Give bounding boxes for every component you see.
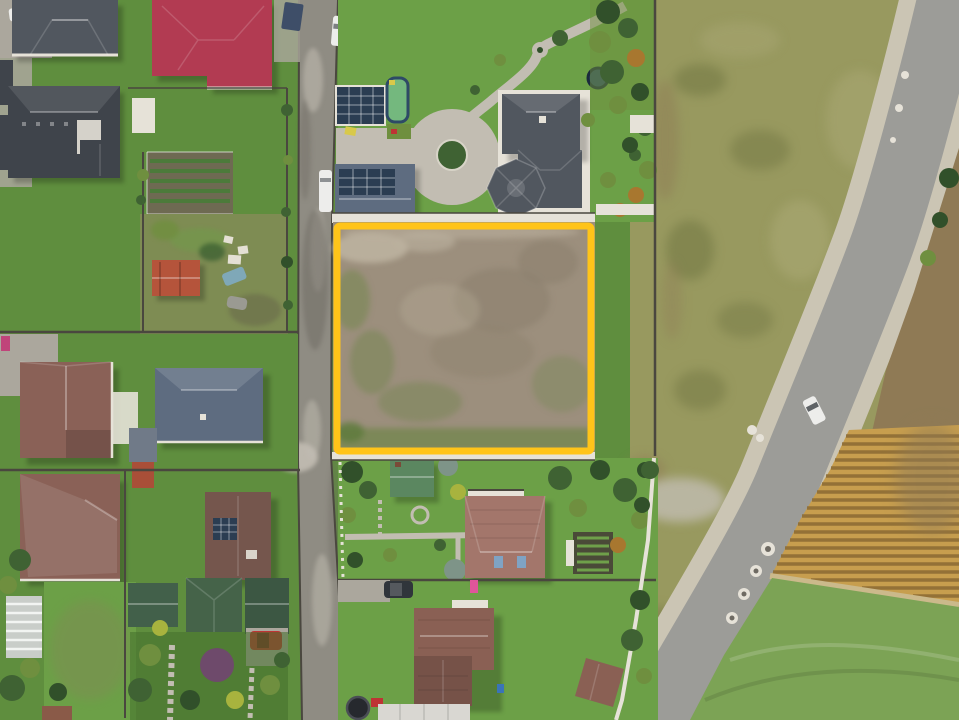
garden-cabin (390, 459, 439, 503)
hot-tub (347, 697, 369, 719)
block-west (0, 334, 300, 488)
rusty-shed (152, 260, 205, 301)
skylight-2 (517, 556, 526, 568)
pink-slide (470, 580, 478, 593)
block-south-center (338, 456, 659, 720)
greenhouse (6, 596, 42, 658)
chimney (539, 116, 546, 123)
pink-car (1, 336, 10, 351)
house-slate (155, 368, 270, 449)
green-sheds (128, 578, 289, 634)
pool-slide (389, 80, 395, 85)
house-south-a (465, 490, 552, 584)
swimming-pool (387, 78, 408, 122)
veg-garden-s (566, 532, 613, 574)
bottom-shed (42, 706, 72, 720)
estate-south-wall (596, 204, 655, 215)
house-red-roof (152, 0, 278, 94)
house-nw-upper (12, 0, 123, 62)
solar-garage (335, 85, 386, 126)
house-brown-sw (20, 474, 126, 586)
aerial-photo-canvas (0, 0, 959, 720)
white-shed (132, 98, 155, 133)
shed-red (132, 462, 154, 488)
aerial-photo (0, 0, 959, 720)
garden-beds (147, 152, 233, 214)
shed-slate (129, 428, 157, 462)
sw-garden (128, 620, 290, 720)
purple-tree (200, 648, 234, 682)
villa (487, 90, 590, 217)
plot-wall-north (332, 213, 595, 223)
skylight-1 (494, 556, 503, 568)
land-plot (332, 213, 595, 460)
house-nw-lower (8, 86, 124, 183)
house-south-b (414, 600, 502, 712)
utility-box (630, 115, 656, 133)
dark-car (384, 581, 413, 598)
blue-tarp (281, 2, 304, 31)
street-van (319, 170, 332, 212)
house-mauve (20, 362, 119, 465)
driveway-island-tree (437, 140, 467, 170)
house-solar-s (205, 492, 278, 587)
sc-driveway (338, 580, 390, 602)
blue-item (497, 684, 504, 693)
